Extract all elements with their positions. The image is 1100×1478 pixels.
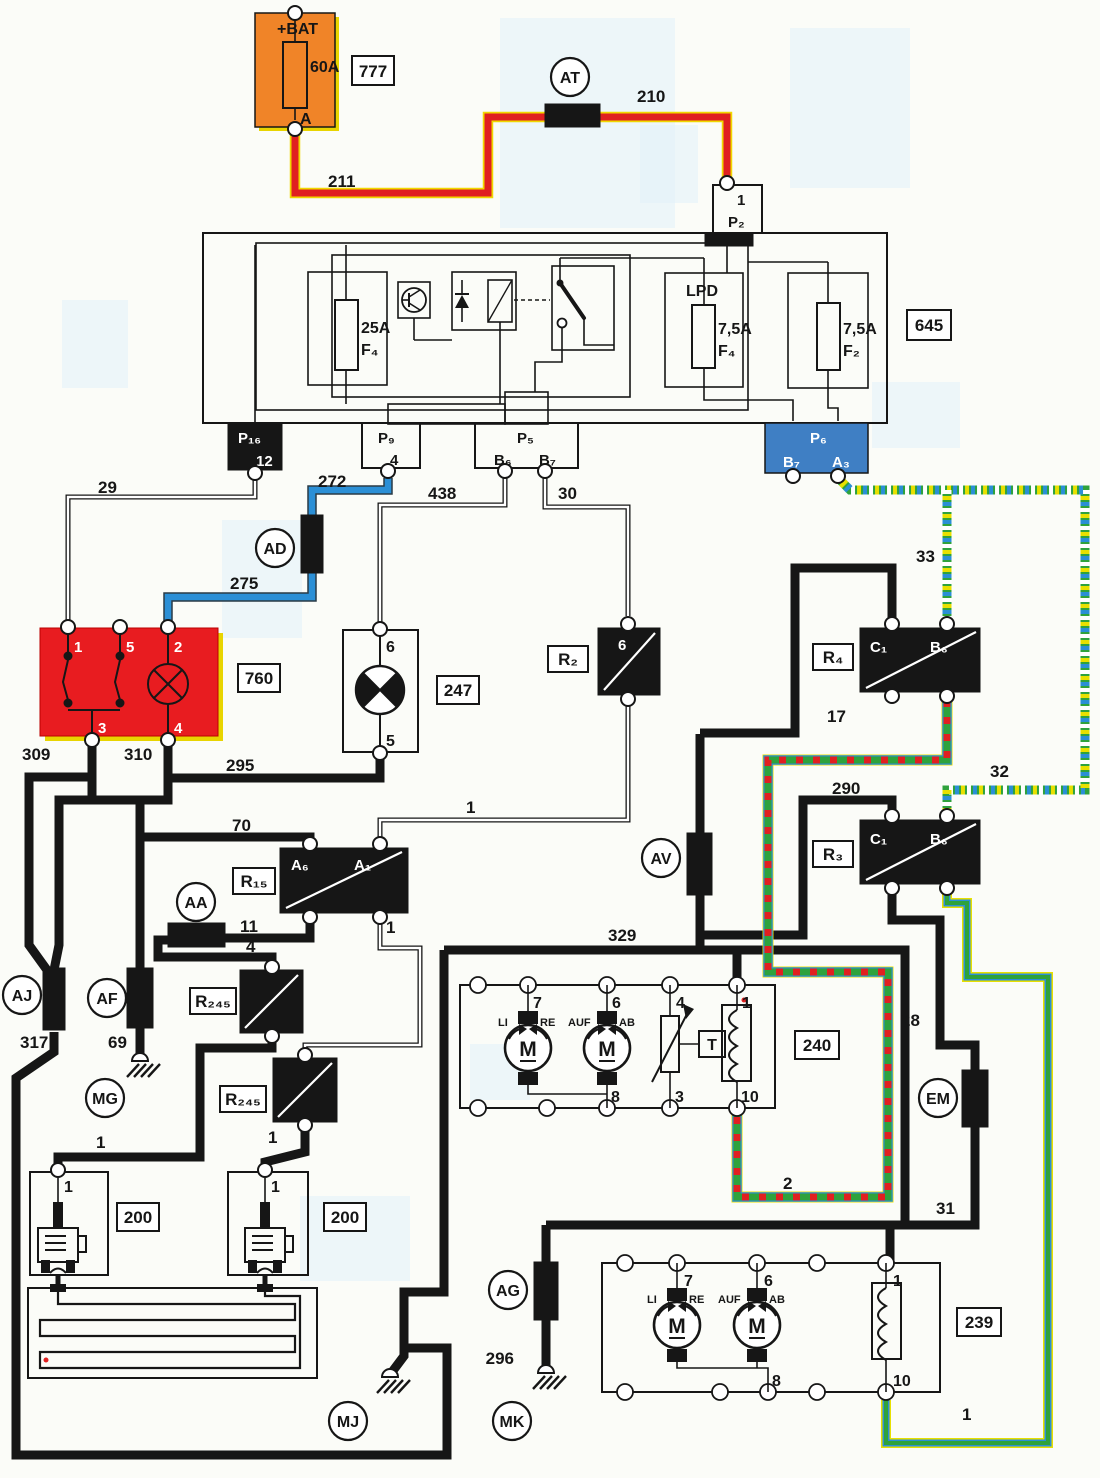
wire-label-317: 317 bbox=[20, 1033, 48, 1052]
connector-r2: 6 R₂ bbox=[548, 617, 660, 706]
wiring-diagram-page: +BAT 60A A 777 AT 210 211 1 P₂ 25A F₄ bbox=[0, 0, 1100, 1478]
svg-text:M: M bbox=[668, 1315, 686, 1338]
svg-text:5: 5 bbox=[386, 733, 395, 750]
svg-text:C₁: C₁ bbox=[870, 639, 887, 656]
ref-200-right: 200 bbox=[331, 1208, 359, 1227]
svg-text:1: 1 bbox=[271, 1179, 280, 1196]
ref-760: 760 bbox=[245, 669, 273, 688]
svg-text:AJ: AJ bbox=[12, 988, 32, 1005]
inline-connector-ag: AG bbox=[489, 1271, 527, 1309]
svg-text:3: 3 bbox=[98, 720, 106, 737]
ref-r4: R₄ bbox=[823, 648, 843, 667]
svg-text:P₉: P₉ bbox=[378, 430, 395, 447]
connector-r15: A₆ A₁ R₁₅ bbox=[233, 837, 408, 924]
svg-text:AG: AG bbox=[496, 1283, 520, 1300]
label-fuse-25a-name: F₄ bbox=[361, 342, 378, 359]
wire-label-31: 31 bbox=[936, 1199, 955, 1218]
inline-connector-at-block bbox=[545, 104, 600, 127]
wire-label-70: 70 bbox=[232, 816, 251, 835]
svg-text:AUF: AUF bbox=[718, 1294, 741, 1306]
svg-text:7: 7 bbox=[533, 995, 542, 1012]
svg-text:AB: AB bbox=[619, 1017, 635, 1029]
svg-text:AUF: AUF bbox=[568, 1017, 591, 1029]
svg-text:AA: AA bbox=[184, 895, 208, 912]
inline-connector-at: AT bbox=[551, 58, 589, 96]
connector-r245-1: R₂₄₅ bbox=[190, 960, 303, 1043]
svg-text:LI: LI bbox=[498, 1017, 508, 1029]
svg-text:AD: AD bbox=[263, 541, 286, 558]
connector-p6: P₆ B₇ A₃ bbox=[765, 423, 868, 483]
svg-text:P₁₆: P₁₆ bbox=[238, 430, 261, 447]
label-pin-a: A bbox=[300, 111, 312, 128]
wiring-diagram: +BAT 60A A 777 AT 210 211 1 P₂ 25A F₄ bbox=[0, 0, 1100, 1478]
svg-text:4: 4 bbox=[174, 720, 183, 737]
wire-label-210: 210 bbox=[637, 87, 665, 106]
inline-connector-aa-block bbox=[168, 923, 225, 947]
ref-240: 240 bbox=[803, 1036, 831, 1055]
svg-text:B₆: B₆ bbox=[930, 831, 948, 848]
inline-connector-af: AF bbox=[88, 979, 126, 1017]
svg-text:8: 8 bbox=[772, 1373, 781, 1390]
inline-connector-ad: AD bbox=[256, 529, 294, 567]
wire-label-1b: 1 bbox=[386, 918, 395, 937]
svg-text:T: T bbox=[707, 1037, 717, 1054]
ground-mg: MG bbox=[86, 1079, 124, 1117]
svg-text:3: 3 bbox=[675, 1089, 684, 1106]
svg-text:1: 1 bbox=[64, 1179, 73, 1196]
ref-r3: R₃ bbox=[823, 845, 843, 864]
svg-text:P₅: P₅ bbox=[517, 430, 534, 447]
svg-text:10: 10 bbox=[741, 1089, 759, 1106]
wire-label-1a: 1 bbox=[466, 798, 475, 817]
ref-645: 645 bbox=[915, 316, 943, 335]
inline-connector-av: AV bbox=[642, 839, 680, 877]
svg-text:A₃: A₃ bbox=[832, 454, 850, 471]
label-fuse-75a: 7,5A bbox=[718, 321, 752, 338]
wire-label-329: 329 bbox=[608, 926, 636, 945]
ref-200-left: 200 bbox=[124, 1208, 152, 1227]
svg-text:1: 1 bbox=[742, 995, 751, 1012]
wire-295 bbox=[168, 754, 380, 778]
label-fuse-75b-name: F₂ bbox=[843, 343, 860, 360]
connector-p2: 1 P₂ bbox=[713, 176, 762, 233]
ground-symbol-mg bbox=[127, 1053, 160, 1077]
svg-text:A₁: A₁ bbox=[354, 857, 371, 874]
svg-text:2: 2 bbox=[174, 639, 182, 656]
svg-text:5: 5 bbox=[126, 639, 134, 656]
ground-symbol-mj bbox=[377, 1369, 410, 1393]
plug-icon-left bbox=[38, 1178, 86, 1273]
connector-p5: P₅ B₆ B₇ bbox=[475, 423, 578, 478]
svg-text:MK: MK bbox=[500, 1414, 525, 1431]
svg-text:1: 1 bbox=[893, 1273, 902, 1290]
label-lpd: LPD bbox=[686, 283, 718, 300]
svg-text:M: M bbox=[598, 1038, 616, 1061]
label-fuse-25a: 25A bbox=[361, 320, 391, 337]
wire-label-17: 17 bbox=[827, 707, 846, 726]
svg-text:6: 6 bbox=[618, 637, 626, 654]
wire-label-32: 32 bbox=[990, 762, 1009, 781]
component-760-switch: 1 5 2 3 4 760 bbox=[40, 620, 280, 747]
junction-aj-block bbox=[43, 968, 65, 1030]
component-239-mirror-unit: M M 7 6 1 8 10 LI RE AUF AB 239 bbox=[602, 1255, 1001, 1400]
svg-text:M: M bbox=[748, 1315, 766, 1338]
inline-connector-em-block bbox=[962, 1070, 988, 1127]
svg-text:7: 7 bbox=[684, 1273, 693, 1290]
relay-switch-icon bbox=[560, 283, 584, 318]
wire-label-272: 272 bbox=[318, 472, 346, 491]
svg-text:4: 4 bbox=[676, 995, 685, 1012]
connector-r4: C₁ B₆ R₄ bbox=[813, 617, 980, 703]
heater-grid-element bbox=[40, 1288, 300, 1368]
ref-r2: R₂ bbox=[558, 650, 578, 669]
wire-31 bbox=[546, 1127, 975, 1225]
component-247-lamp: 6 5 247 bbox=[343, 622, 479, 760]
svg-text:A₆: A₆ bbox=[291, 857, 309, 874]
component-645-control-unit: 25A F₄ LPD 7,5A bbox=[203, 233, 951, 424]
svg-text:MG: MG bbox=[92, 1091, 118, 1108]
svg-text:6: 6 bbox=[386, 639, 395, 656]
svg-text:B₆: B₆ bbox=[930, 639, 948, 656]
inline-connector-ad-block bbox=[301, 515, 323, 573]
wire-label-438: 438 bbox=[428, 484, 456, 503]
wire-label-2: 2 bbox=[783, 1174, 792, 1193]
svg-text:1: 1 bbox=[737, 192, 745, 209]
ref-239: 239 bbox=[965, 1313, 993, 1332]
inline-connector-aa: AA bbox=[177, 883, 215, 921]
inline-connector-em: EM bbox=[919, 1079, 957, 1117]
wire-label-1e: 1 bbox=[268, 1128, 277, 1147]
wire-label-69: 69 bbox=[108, 1033, 127, 1052]
wire-label-29: 29 bbox=[98, 478, 117, 497]
label-fuse-75b: 7,5A bbox=[843, 321, 877, 338]
wire-label-4: 4 bbox=[246, 937, 256, 956]
component-200-left: 1 200 bbox=[30, 1163, 159, 1275]
svg-text:1: 1 bbox=[74, 639, 82, 656]
wire-label-1c: 1 bbox=[962, 1405, 971, 1424]
wire-11 bbox=[225, 918, 310, 938]
ref-r15: R₁₅ bbox=[240, 872, 267, 891]
connector-p16: P₁₆ 12 bbox=[228, 423, 282, 480]
connector-r3: C₁ B₆ R₃ bbox=[813, 809, 980, 895]
ref-247: 247 bbox=[444, 681, 472, 700]
wire-label-310: 310 bbox=[124, 745, 152, 764]
wire-70 bbox=[92, 779, 310, 842]
label-60a: 60A bbox=[310, 59, 340, 76]
svg-text:M: M bbox=[519, 1038, 537, 1061]
svg-text:C₁: C₁ bbox=[870, 831, 887, 848]
connector-r245-2: R₂₄₅ bbox=[220, 1048, 337, 1132]
svg-text:EM: EM bbox=[926, 1091, 950, 1108]
svg-text:6: 6 bbox=[612, 995, 621, 1012]
component-777-battery-fuse: +BAT 60A A 777 bbox=[255, 6, 394, 136]
connector-p9: P₉ 4 bbox=[362, 423, 420, 478]
ref-r245-2: R₂₄₅ bbox=[225, 1090, 261, 1109]
ground-symbol-mk bbox=[533, 1365, 566, 1389]
wire-label-309: 309 bbox=[22, 745, 50, 764]
inline-connector-av-block bbox=[687, 833, 712, 895]
wire-label-33: 33 bbox=[916, 547, 935, 566]
svg-text:P₂: P₂ bbox=[728, 214, 745, 231]
svg-text:AB: AB bbox=[769, 1294, 785, 1306]
svg-text:MJ: MJ bbox=[337, 1414, 359, 1431]
inline-connector-aj: AJ bbox=[3, 976, 41, 1014]
wire-label-11: 11 bbox=[240, 917, 258, 936]
ref-r245-1: R₂₄₅ bbox=[195, 992, 231, 1011]
svg-text:RE: RE bbox=[689, 1294, 704, 1306]
label-fuse-75a-name: F₄ bbox=[718, 343, 735, 360]
striped-wire-1-bottom bbox=[886, 891, 1048, 1443]
wire-label-28: 28 bbox=[901, 1011, 920, 1030]
svg-text:8: 8 bbox=[611, 1089, 620, 1106]
wire-label-30: 30 bbox=[558, 484, 577, 503]
svg-text:AT: AT bbox=[560, 70, 580, 87]
svg-text:AF: AF bbox=[96, 991, 118, 1008]
wire-label-296: 296 bbox=[486, 1349, 514, 1368]
svg-text:LI: LI bbox=[647, 1294, 657, 1306]
inline-connector-af-block bbox=[127, 968, 153, 1028]
ref-777: 777 bbox=[359, 62, 387, 81]
plug-icon-right bbox=[245, 1178, 293, 1273]
wire-label-295: 295 bbox=[226, 756, 254, 775]
wire-label-290: 290 bbox=[832, 779, 860, 798]
label-bat: +BAT bbox=[277, 21, 318, 38]
wire-label-1d: 1 bbox=[96, 1133, 105, 1152]
ground-mj: MJ bbox=[329, 1402, 367, 1440]
svg-text:10: 10 bbox=[893, 1373, 911, 1390]
svg-text:6: 6 bbox=[764, 1273, 773, 1290]
heater-grid bbox=[28, 1275, 317, 1378]
ground-mk: MK bbox=[493, 1402, 531, 1440]
inline-connector-ag-block bbox=[534, 1262, 558, 1320]
wire-label-275: 275 bbox=[230, 574, 258, 593]
svg-text:AV: AV bbox=[650, 851, 671, 868]
svg-text:P₆: P₆ bbox=[810, 430, 827, 447]
wire-label-211: 211 bbox=[328, 172, 355, 191]
diode-icon bbox=[455, 295, 469, 308]
svg-text:RE: RE bbox=[540, 1017, 555, 1029]
